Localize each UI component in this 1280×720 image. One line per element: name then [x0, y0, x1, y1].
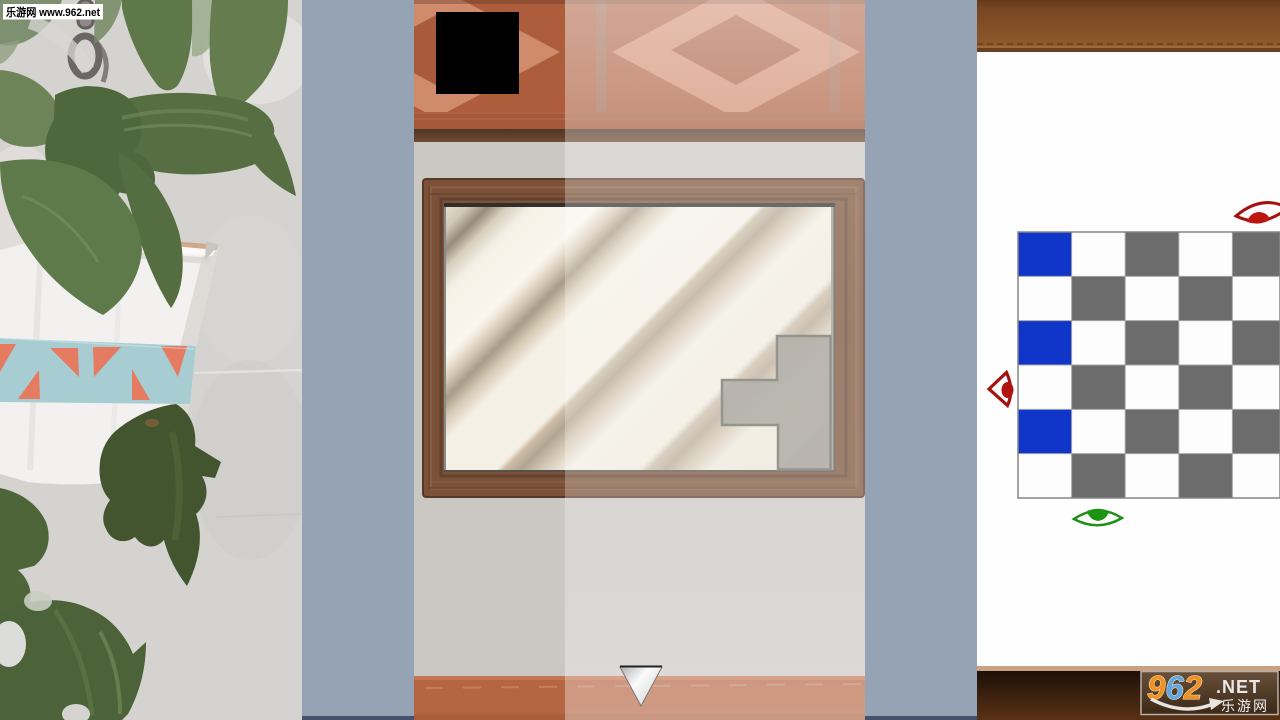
svg-text:乐游网 www.962.net: 乐游网 www.962.net — [6, 5, 100, 19]
svg-text:.NET: .NET — [1216, 677, 1261, 697]
svg-text:乐游网: 乐游网 — [1221, 698, 1269, 714]
